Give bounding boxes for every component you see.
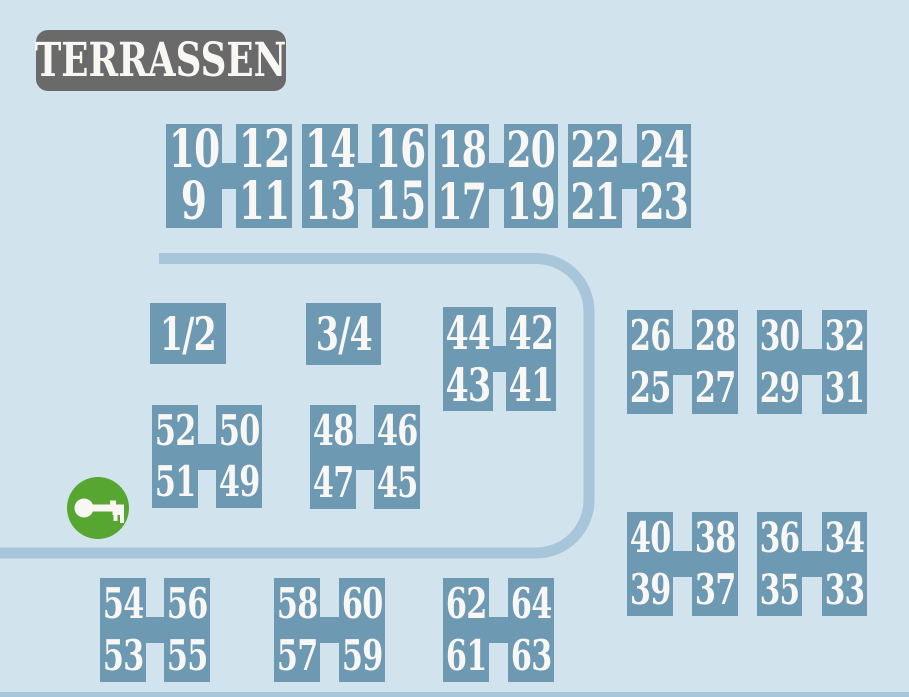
terrace-cell: 20 — [504, 124, 558, 176]
terrace-number-1-2: 1/2 — [160, 311, 216, 357]
terrace-block-53-56: 54535655 — [100, 578, 210, 682]
terrace-cell: 24 — [637, 124, 691, 176]
block-crossbar — [672, 551, 693, 577]
terrace-cell-3-4: 3/4 — [306, 303, 381, 365]
terrace-number-22: 22 — [571, 125, 620, 175]
terrace-cell: 10 — [166, 124, 222, 176]
terrace-number-39: 39 — [630, 569, 671, 611]
terrace-number-64: 64 — [511, 583, 552, 625]
terrace-cell: 28 — [692, 310, 738, 362]
terrace-cell: 14 — [302, 124, 358, 176]
terrace-number-16: 16 — [375, 124, 426, 176]
terrace-number-48: 48 — [313, 410, 354, 452]
terrace-cell: 54 — [100, 578, 146, 630]
terrace-cell-1-2: 1/2 — [150, 303, 226, 364]
block-crossbar — [488, 617, 509, 643]
terrace-cell: 29 — [757, 362, 802, 414]
terrace-number-41: 41 — [509, 362, 554, 408]
terrace-number-55: 55 — [167, 635, 208, 677]
terrace-number-58: 58 — [277, 583, 318, 625]
terrace-number-43: 43 — [446, 362, 491, 408]
terrace-number-9: 9 — [181, 176, 206, 228]
terrace-column: 4443 — [443, 307, 493, 411]
terrace-cell: 58 — [274, 578, 320, 630]
terrace-number-49: 49 — [219, 461, 260, 503]
block-crossbar — [357, 163, 373, 189]
terrace-number-54: 54 — [103, 583, 144, 625]
terrace-block-17-20: 18172019 — [435, 124, 558, 228]
terrace-block-25-28: 26252827 — [627, 310, 738, 414]
terrace-column: 3635 — [757, 512, 802, 616]
terrace-cell: 43 — [443, 359, 493, 411]
terrace-column: 3433 — [822, 512, 867, 616]
terrace-column: 5857 — [274, 578, 320, 682]
terrace-cell: 49 — [216, 457, 262, 509]
terrace-cell: 48 — [310, 405, 356, 457]
terrace-column: 1817 — [435, 124, 489, 228]
terrace-cell: 52 — [152, 405, 198, 457]
terrace-number-57: 57 — [277, 635, 318, 677]
terrace-cell: 61 — [443, 630, 489, 682]
terrace-cell: 15 — [372, 176, 428, 228]
terrace-number-34: 34 — [825, 518, 865, 559]
terrace-block-9-12: 1091211 — [166, 124, 292, 228]
terrace-cell: 44 — [443, 307, 493, 359]
terrace-cell: 31 — [822, 362, 867, 414]
terrace-number-62: 62 — [446, 583, 487, 625]
terrace-cell: 36 — [757, 512, 802, 564]
terrace-cell: 55 — [164, 630, 210, 682]
terrassen-badge: TERRASSEN — [36, 30, 286, 91]
terrace-number-40: 40 — [630, 517, 671, 559]
key-marker — [67, 477, 129, 539]
terrace-cell: 16 — [372, 124, 428, 176]
terrace-number-10: 10 — [169, 124, 220, 176]
terrace-number-18: 18 — [438, 125, 487, 175]
terrace-cell: 30 — [757, 310, 802, 362]
terrace-cell: 37 — [692, 564, 738, 616]
bottom-road-strip — [0, 692, 909, 697]
terrace-number-24: 24 — [640, 125, 689, 175]
terrace-cell: 45 — [374, 457, 420, 509]
block-crossbar — [492, 346, 507, 372]
page-title: TERRASSEN — [35, 37, 287, 84]
terrace-cell: 39 — [627, 564, 673, 616]
terrace-number-60: 60 — [342, 583, 383, 625]
terrace-cell: 25 — [627, 362, 673, 414]
terrace-cell: 35 — [757, 564, 802, 616]
terrace-number-21: 21 — [571, 177, 620, 227]
block-crossbar — [488, 163, 505, 189]
terrace-block-61-64: 62616463 — [443, 578, 554, 682]
terrace-number-29: 29 — [760, 368, 800, 409]
terrace-number-51: 51 — [155, 461, 196, 503]
terrace-cell: 27 — [692, 362, 738, 414]
terrace-cell: 42 — [506, 307, 556, 359]
terrace-cell: 41 — [506, 359, 556, 411]
terrace-column: 4039 — [627, 512, 673, 616]
terrace-cell: 12 — [236, 124, 292, 176]
terrace-cell: 13 — [302, 176, 358, 228]
terrace-column: 2625 — [627, 310, 673, 414]
terrace-block-57-60: 58576059 — [274, 578, 385, 682]
terrace-cell: 59 — [339, 630, 385, 682]
terrace-number-25: 25 — [630, 367, 671, 409]
terrace-column: 1615 — [372, 124, 428, 228]
terrace-column: 109 — [166, 124, 222, 228]
terrace-cell: 34 — [822, 512, 867, 564]
terrace-number-12: 12 — [239, 124, 290, 176]
terrace-column: 2019 — [504, 124, 558, 228]
terrace-number-13: 13 — [305, 176, 356, 228]
terrace-column: 5655 — [164, 578, 210, 682]
terrace-column: 3029 — [757, 310, 802, 414]
terrace-cell: 38 — [692, 512, 738, 564]
terrace-cell: 17 — [435, 176, 489, 228]
terrace-number-38: 38 — [695, 517, 736, 559]
terrace-cell: 64 — [508, 578, 554, 630]
terrace-block-29-32: 30293231 — [757, 310, 867, 414]
terrace-cell: 32 — [822, 310, 867, 362]
terrace-number-19: 19 — [507, 177, 556, 227]
terrace-cell: 9 — [166, 176, 222, 228]
terrace-column: 4241 — [506, 307, 556, 411]
terrace-number-53: 53 — [103, 635, 144, 677]
terrace-number-37: 37 — [695, 569, 736, 611]
terrace-column: 3231 — [822, 310, 867, 414]
terrace-number-46: 46 — [377, 410, 418, 452]
terrace-block-33-36: 36353433 — [757, 512, 867, 616]
terrace-cell: 11 — [236, 176, 292, 228]
terrace-block-21-24: 22212423 — [568, 124, 691, 228]
terrace-number-17: 17 — [438, 177, 487, 227]
terrace-number-15: 15 — [375, 176, 426, 228]
key-icon — [67, 477, 129, 539]
terrace-number-35: 35 — [760, 570, 800, 611]
terrace-number-28: 28 — [695, 315, 736, 357]
terrace-number-45: 45 — [377, 462, 418, 504]
terrace-number-52: 52 — [155, 410, 196, 452]
terrace-cell: 57 — [274, 630, 320, 682]
terrace-column: 2827 — [692, 310, 738, 414]
terrace-number-56: 56 — [167, 583, 208, 625]
terrace-number-32: 32 — [825, 316, 865, 357]
terrace-column: 1413 — [302, 124, 358, 228]
terrace-column: 2221 — [568, 124, 622, 228]
block-crossbar — [621, 163, 638, 189]
terrace-number-31: 31 — [825, 368, 865, 409]
terrace-block-13-16: 14131615 — [302, 124, 428, 228]
terrace-number-42: 42 — [509, 310, 554, 356]
terrace-number-23: 23 — [640, 177, 689, 227]
block-crossbar — [319, 617, 340, 643]
terrace-column: 4645 — [374, 405, 420, 509]
terrace-cell: 60 — [339, 578, 385, 630]
terrace-number-47: 47 — [313, 462, 354, 504]
terrace-number-59: 59 — [342, 635, 383, 677]
terrace-column: 5251 — [152, 405, 198, 508]
terrace-number-20: 20 — [507, 125, 556, 175]
block-crossbar — [801, 349, 823, 375]
block-crossbar — [672, 349, 693, 375]
terrace-cell: 22 — [568, 124, 622, 176]
terrace-block-49-52: 52515049 — [152, 405, 262, 508]
terrace-number-36: 36 — [760, 518, 800, 559]
block-crossbar — [197, 444, 217, 470]
terrace-number-50: 50 — [219, 410, 260, 452]
terrace-cell: 40 — [627, 512, 673, 564]
terrace-cell: 18 — [435, 124, 489, 176]
terrace-column: 6463 — [508, 578, 554, 682]
terrace-column: 4847 — [310, 405, 356, 509]
terrace-block-45-48: 48474645 — [310, 405, 420, 509]
terrace-cell: 47 — [310, 457, 356, 509]
terrace-column: 2423 — [637, 124, 691, 228]
terrace-cell: 46 — [374, 405, 420, 457]
terrassen-site-map: TERRASSEN 109121114131615181720192221242… — [0, 0, 909, 697]
block-crossbar — [801, 551, 823, 577]
terrace-number-27: 27 — [695, 367, 736, 409]
terrace-number-63: 63 — [511, 635, 552, 677]
terrace-number-11: 11 — [239, 176, 290, 228]
terrace-column: 3837 — [692, 512, 738, 616]
terrace-column: 6261 — [443, 578, 489, 682]
terrace-cell: 33 — [822, 564, 867, 616]
terrace-column: 6059 — [339, 578, 385, 682]
terrace-block-41-44: 44434241 — [443, 307, 556, 411]
terrace-cell: 51 — [152, 457, 198, 509]
terrace-number-33: 33 — [825, 570, 865, 611]
terrace-cell: 23 — [637, 176, 691, 228]
terrace-number-61: 61 — [446, 635, 487, 677]
terrace-cell: 63 — [508, 630, 554, 682]
terrace-number-30: 30 — [760, 316, 800, 357]
terrace-cell: 53 — [100, 630, 146, 682]
terrace-cell: 19 — [504, 176, 558, 228]
terrace-number-44: 44 — [446, 310, 491, 356]
block-crossbar — [221, 163, 237, 189]
terrace-number-14: 14 — [305, 124, 356, 176]
terrace-number-3-4: 3/4 — [315, 311, 371, 357]
block-crossbar — [145, 617, 165, 643]
terrace-column: 1211 — [236, 124, 292, 228]
terrace-number-26: 26 — [630, 315, 671, 357]
terrace-cell: 21 — [568, 176, 622, 228]
terrace-column: 5049 — [216, 405, 262, 508]
terrace-cell: 56 — [164, 578, 210, 630]
terrace-cell: 26 — [627, 310, 673, 362]
terrace-cell: 50 — [216, 405, 262, 457]
terrace-cell: 62 — [443, 578, 489, 630]
terrace-block-37-40: 40393837 — [627, 512, 738, 616]
block-crossbar — [355, 444, 375, 470]
terrace-column: 5453 — [100, 578, 146, 682]
